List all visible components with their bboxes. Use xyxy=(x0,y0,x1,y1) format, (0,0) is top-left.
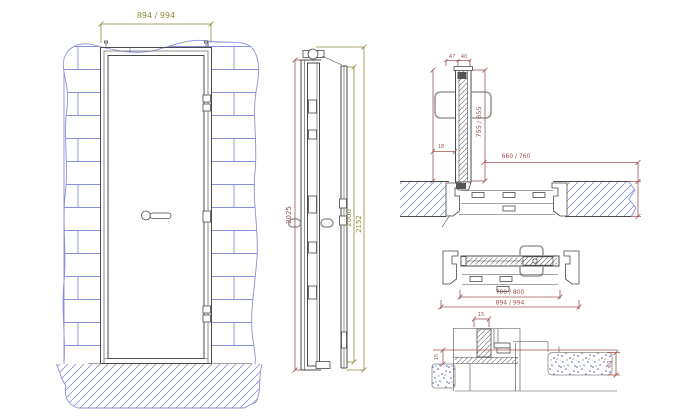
dim-opening-width: 894 / 994 xyxy=(99,11,214,43)
dim-leaf-width-label: 755 / 855 xyxy=(475,106,483,137)
door-technical-drawing: 894 / 994 xyxy=(0,0,686,420)
floor-hatch xyxy=(56,364,262,408)
dim-overall-width: 894 / 994 xyxy=(439,300,582,310)
door-handle xyxy=(142,211,172,220)
door-frame xyxy=(101,41,212,364)
brick-wall xyxy=(63,40,259,364)
wall-plan-section xyxy=(400,182,636,228)
dim-top-small: 47 40 xyxy=(445,54,472,66)
side-leaf xyxy=(308,63,331,369)
dim-clear-height-label: 2000 xyxy=(345,209,353,227)
dim-level-label: 15 xyxy=(434,354,440,360)
dim-leaf-height-label: 2025 xyxy=(285,206,293,224)
floor-slab-left xyxy=(432,364,455,388)
door-leaf xyxy=(108,56,204,359)
closed-plan-section-view: 700 / 800 894 / 994 xyxy=(439,246,582,310)
closed-leaf xyxy=(461,256,559,266)
threshold-detail-view: 15 15 xyxy=(432,312,620,391)
dim-clear-width-label: 700 / 800 xyxy=(496,289,525,296)
dim-opening-width-label: 894 / 994 xyxy=(137,11,175,20)
floor-slab-right xyxy=(548,353,612,376)
technical-drawing-canvas: 894 / 994 xyxy=(0,0,686,420)
dim-overall-height-label: 2152 xyxy=(355,215,363,233)
door-latch xyxy=(203,211,211,222)
dim-clear-opening-label: 660 / 760 xyxy=(502,153,531,160)
dim-leaf-thickness: 18 xyxy=(431,144,457,154)
front-elevation-view: 894 / 994 xyxy=(56,11,262,408)
dim-thickness-label: 18 xyxy=(438,144,444,150)
dim-a-label: 47 xyxy=(449,54,455,60)
right-jamb xyxy=(564,251,579,284)
dim-floor-thickness-label: 30 xyxy=(607,361,613,367)
open-leaf xyxy=(454,67,473,191)
open-leaf-section-view: 47 40 755 / 855 18 660 / 760 xyxy=(400,54,641,227)
dim-leaf-height: 2025 xyxy=(285,58,301,373)
side-section-view: 2025 2000 2152 xyxy=(285,45,367,373)
dim-b-label: 40 xyxy=(461,54,467,60)
dim-gap-label: 15 xyxy=(478,312,484,318)
dim-gap: 15 xyxy=(472,312,491,327)
dim-overall-width-label: 894 / 994 xyxy=(496,300,525,307)
left-jamb xyxy=(443,251,458,284)
dim-clear-opening: 660 / 760 xyxy=(482,153,641,181)
dim-clear-width: 700 / 800 xyxy=(458,289,563,300)
